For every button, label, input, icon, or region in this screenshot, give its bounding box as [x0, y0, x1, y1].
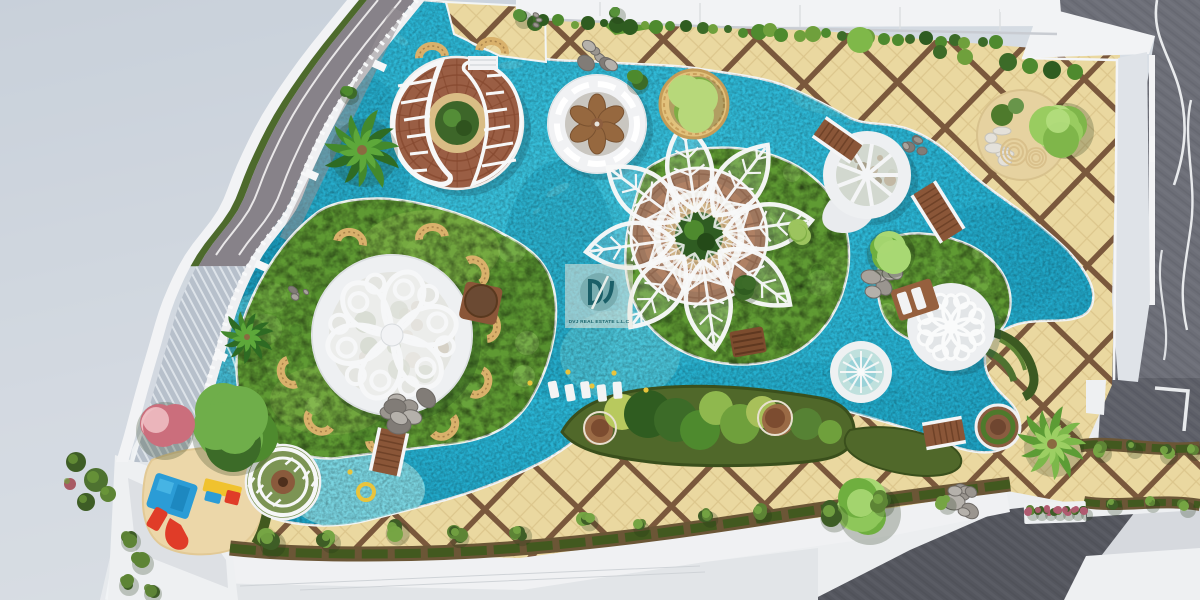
svg-text:DVJ REAL ESTATE L.L.C: DVJ REAL ESTATE L.L.C: [569, 319, 630, 325]
